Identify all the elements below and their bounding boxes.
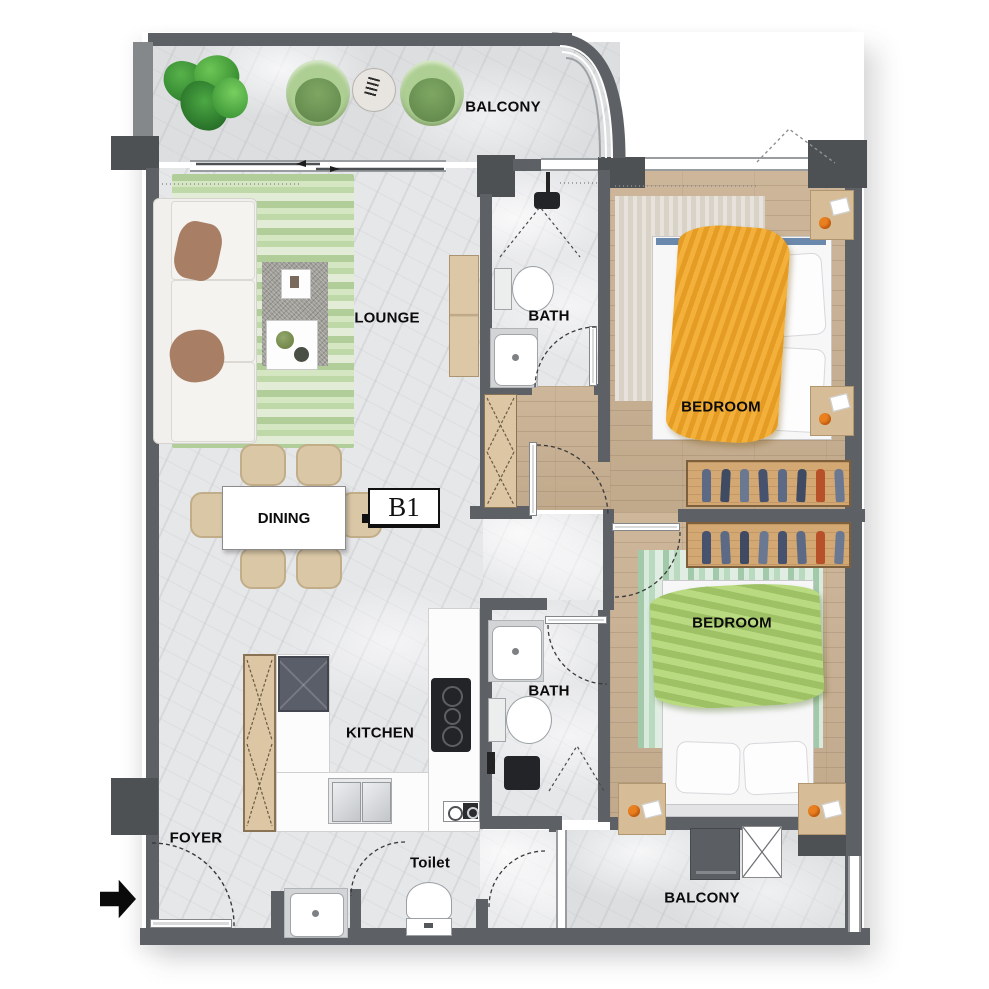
- bottom-wall: [140, 928, 870, 945]
- pantry-cabinet: [243, 654, 276, 832]
- balcony-bottom-right-window: [848, 856, 861, 932]
- toilet-stub-c: [476, 899, 488, 939]
- sink-top-faucet: [512, 354, 519, 361]
- balcony-armchair-1: [286, 60, 350, 126]
- fridge: [278, 656, 329, 712]
- kitchen-label: KITCHEN: [346, 725, 414, 742]
- lounge-label: LOUNGE: [354, 310, 419, 327]
- dining-chair: [240, 547, 286, 589]
- bath-mid-north-wall: [483, 598, 547, 610]
- wardrobe-bottom-clothes: [692, 526, 844, 564]
- tv-console: [449, 255, 479, 377]
- nightstand-bottom-a: [618, 783, 666, 835]
- bedroom-top-label: BEDROOM: [681, 399, 761, 416]
- washing-machine: [690, 828, 740, 880]
- nightstand-top-a: [810, 190, 854, 240]
- balcony-top-label: BALCONY: [465, 99, 541, 116]
- bedroom-bottom-label: BEDROOM: [692, 615, 772, 632]
- nightstand-top-b: [810, 386, 854, 436]
- column-foyer: [111, 778, 158, 835]
- unit-label-tick: [362, 514, 369, 523]
- bath-top-label: BATH: [528, 308, 569, 325]
- shower-stem: [546, 172, 550, 194]
- bath-mid-door-leaf: [545, 616, 607, 624]
- toilet-top-tank: [494, 268, 512, 310]
- bath-mid-right-wall: [598, 610, 610, 822]
- bath-mid-label: BATH: [528, 683, 569, 700]
- unit-label: B1: [388, 494, 420, 521]
- cooktop: [431, 678, 471, 752]
- column-top-right: [808, 140, 867, 188]
- foyer-label: FOYER: [170, 830, 223, 847]
- wardrobe-top-clothes: [692, 464, 844, 502]
- column-bath-top: [477, 155, 515, 197]
- bedroom-divider-wall-b: [678, 509, 865, 522]
- bed-bottom-pillow: [675, 741, 741, 795]
- sink-basin-right: [362, 782, 391, 822]
- bath-top-right-wall: [598, 170, 610, 462]
- side-table-decor: [290, 276, 299, 288]
- sink-basin-left: [332, 782, 361, 822]
- dining-chair: [296, 444, 342, 486]
- balcony-left-wall: [133, 42, 153, 142]
- floor-plan: DINING B1: [0, 0, 989, 989]
- sink-toilet-faucet: [312, 910, 319, 917]
- unit-label-box: B1: [368, 488, 440, 528]
- toilet-mid-bowl: [506, 696, 552, 744]
- toilet-mid-tank: [488, 698, 506, 742]
- sink-mid-faucet: [512, 648, 519, 655]
- bed-bottom-headboard: [658, 804, 816, 817]
- bedroom-bottom-door-leaf: [612, 523, 680, 531]
- bath-top-door-leaf: [589, 326, 597, 386]
- kitchen-sink: [328, 778, 392, 824]
- hall-south-floor: [483, 514, 610, 600]
- toilet-guest-bowl: [406, 882, 452, 920]
- toilet-stub-a: [271, 891, 285, 938]
- entry-door-leaf: [150, 919, 232, 928]
- shower-head-top: [534, 192, 560, 209]
- bedroom-top-window: [645, 157, 808, 171]
- bath-top-window: [541, 158, 598, 171]
- balcony-bottom-label: BALCONY: [664, 890, 740, 907]
- balcony-top-wall: [148, 33, 572, 46]
- kitchen-hob-small: [443, 801, 480, 822]
- nightstand-bottom-b: [798, 783, 846, 835]
- dining-label: DINING: [258, 510, 311, 527]
- linen-closet: [484, 394, 517, 508]
- toilet-label: Toilet: [410, 855, 450, 872]
- balcony-bottom-left-window: [556, 830, 567, 928]
- bed-bottom-green-blanket: [649, 581, 825, 712]
- shower-mid: [504, 756, 540, 790]
- shower-mid-valve: [487, 752, 495, 774]
- toilet-top-bowl: [512, 266, 554, 312]
- column-balcony-left: [111, 136, 159, 170]
- balcony-armchair-2: [400, 60, 464, 126]
- toilet-guest-button: [424, 923, 433, 928]
- corridor-door-leaf: [529, 442, 537, 516]
- coffee-table-plant: [276, 331, 294, 349]
- lounge-sliding-door: [190, 160, 446, 172]
- dining-table: DINING: [222, 486, 346, 550]
- toilet-floor: [480, 830, 568, 930]
- coffee-table-bowl: [294, 347, 309, 362]
- toilet-stub-b: [350, 889, 361, 938]
- entry-arrow-icon: [100, 879, 136, 919]
- dining-chair: [240, 444, 286, 486]
- bath-top-north-wall: [513, 159, 543, 171]
- ac-outdoor-unit: [742, 826, 782, 878]
- dining-chair: [296, 547, 342, 589]
